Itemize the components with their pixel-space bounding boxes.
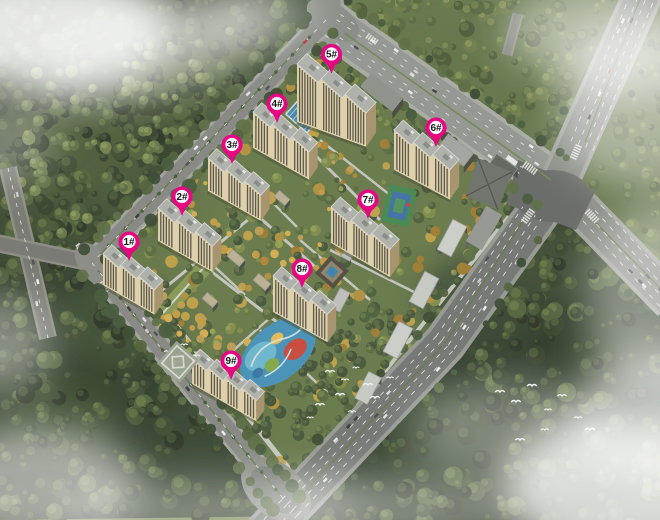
- svg-text:1#: 1#: [123, 237, 135, 248]
- svg-text:2#: 2#: [176, 192, 188, 203]
- svg-text:4#: 4#: [271, 99, 283, 110]
- svg-text:3#: 3#: [226, 140, 238, 151]
- svg-text:5#: 5#: [326, 50, 338, 61]
- svg-text:7#: 7#: [362, 195, 374, 206]
- svg-text:6#: 6#: [430, 123, 442, 134]
- svg-text:9#: 9#: [225, 356, 237, 367]
- svg-text:8#: 8#: [296, 264, 308, 275]
